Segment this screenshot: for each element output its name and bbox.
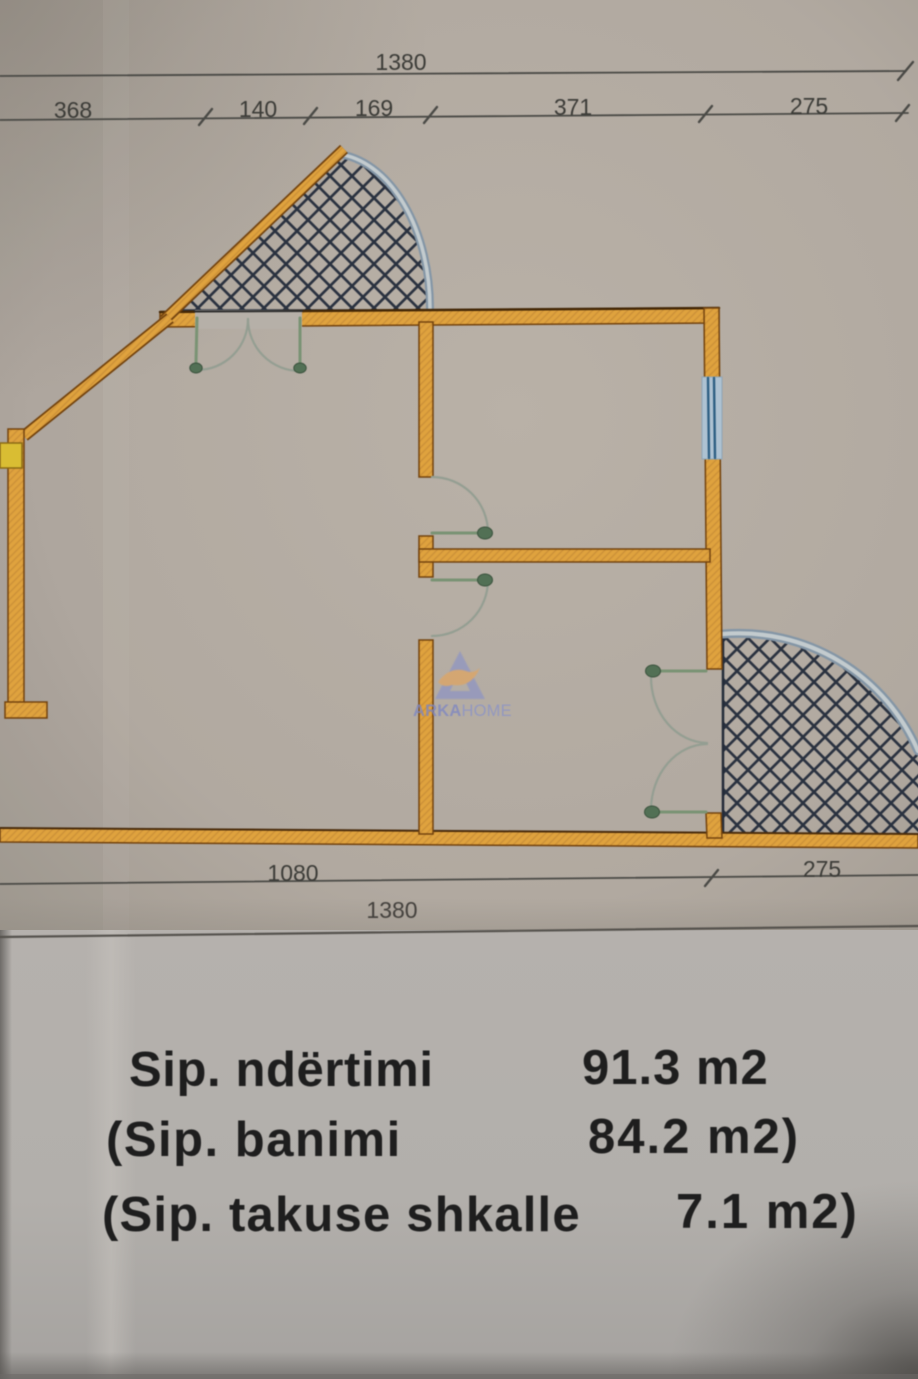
svg-text:169: 169	[355, 95, 393, 121]
svg-text:275: 275	[790, 93, 828, 119]
svg-text:91.3 m2: 91.3 m2	[582, 1041, 769, 1095]
svg-text:371: 371	[554, 94, 592, 120]
svg-text:(Sip. takuse shkalle: (Sip. takuse shkalle	[102, 1188, 581, 1242]
svg-text:140: 140	[239, 96, 277, 122]
svg-text:368: 368	[54, 97, 92, 123]
svg-text:(Sip. banimi: (Sip. banimi	[106, 1113, 402, 1167]
svg-text:ARKAHOME: ARKAHOME	[413, 702, 512, 720]
svg-text:1380: 1380	[366, 897, 417, 923]
svg-text:1380: 1380	[375, 49, 426, 75]
svg-text:1080: 1080	[267, 860, 318, 886]
svg-text:7.1 m2): 7.1 m2)	[676, 1185, 859, 1239]
svg-text:Sip. ndërtimi: Sip. ndërtimi	[129, 1043, 434, 1097]
svg-text:84.2 m2): 84.2 m2)	[588, 1110, 800, 1164]
svg-text:275: 275	[803, 856, 841, 882]
